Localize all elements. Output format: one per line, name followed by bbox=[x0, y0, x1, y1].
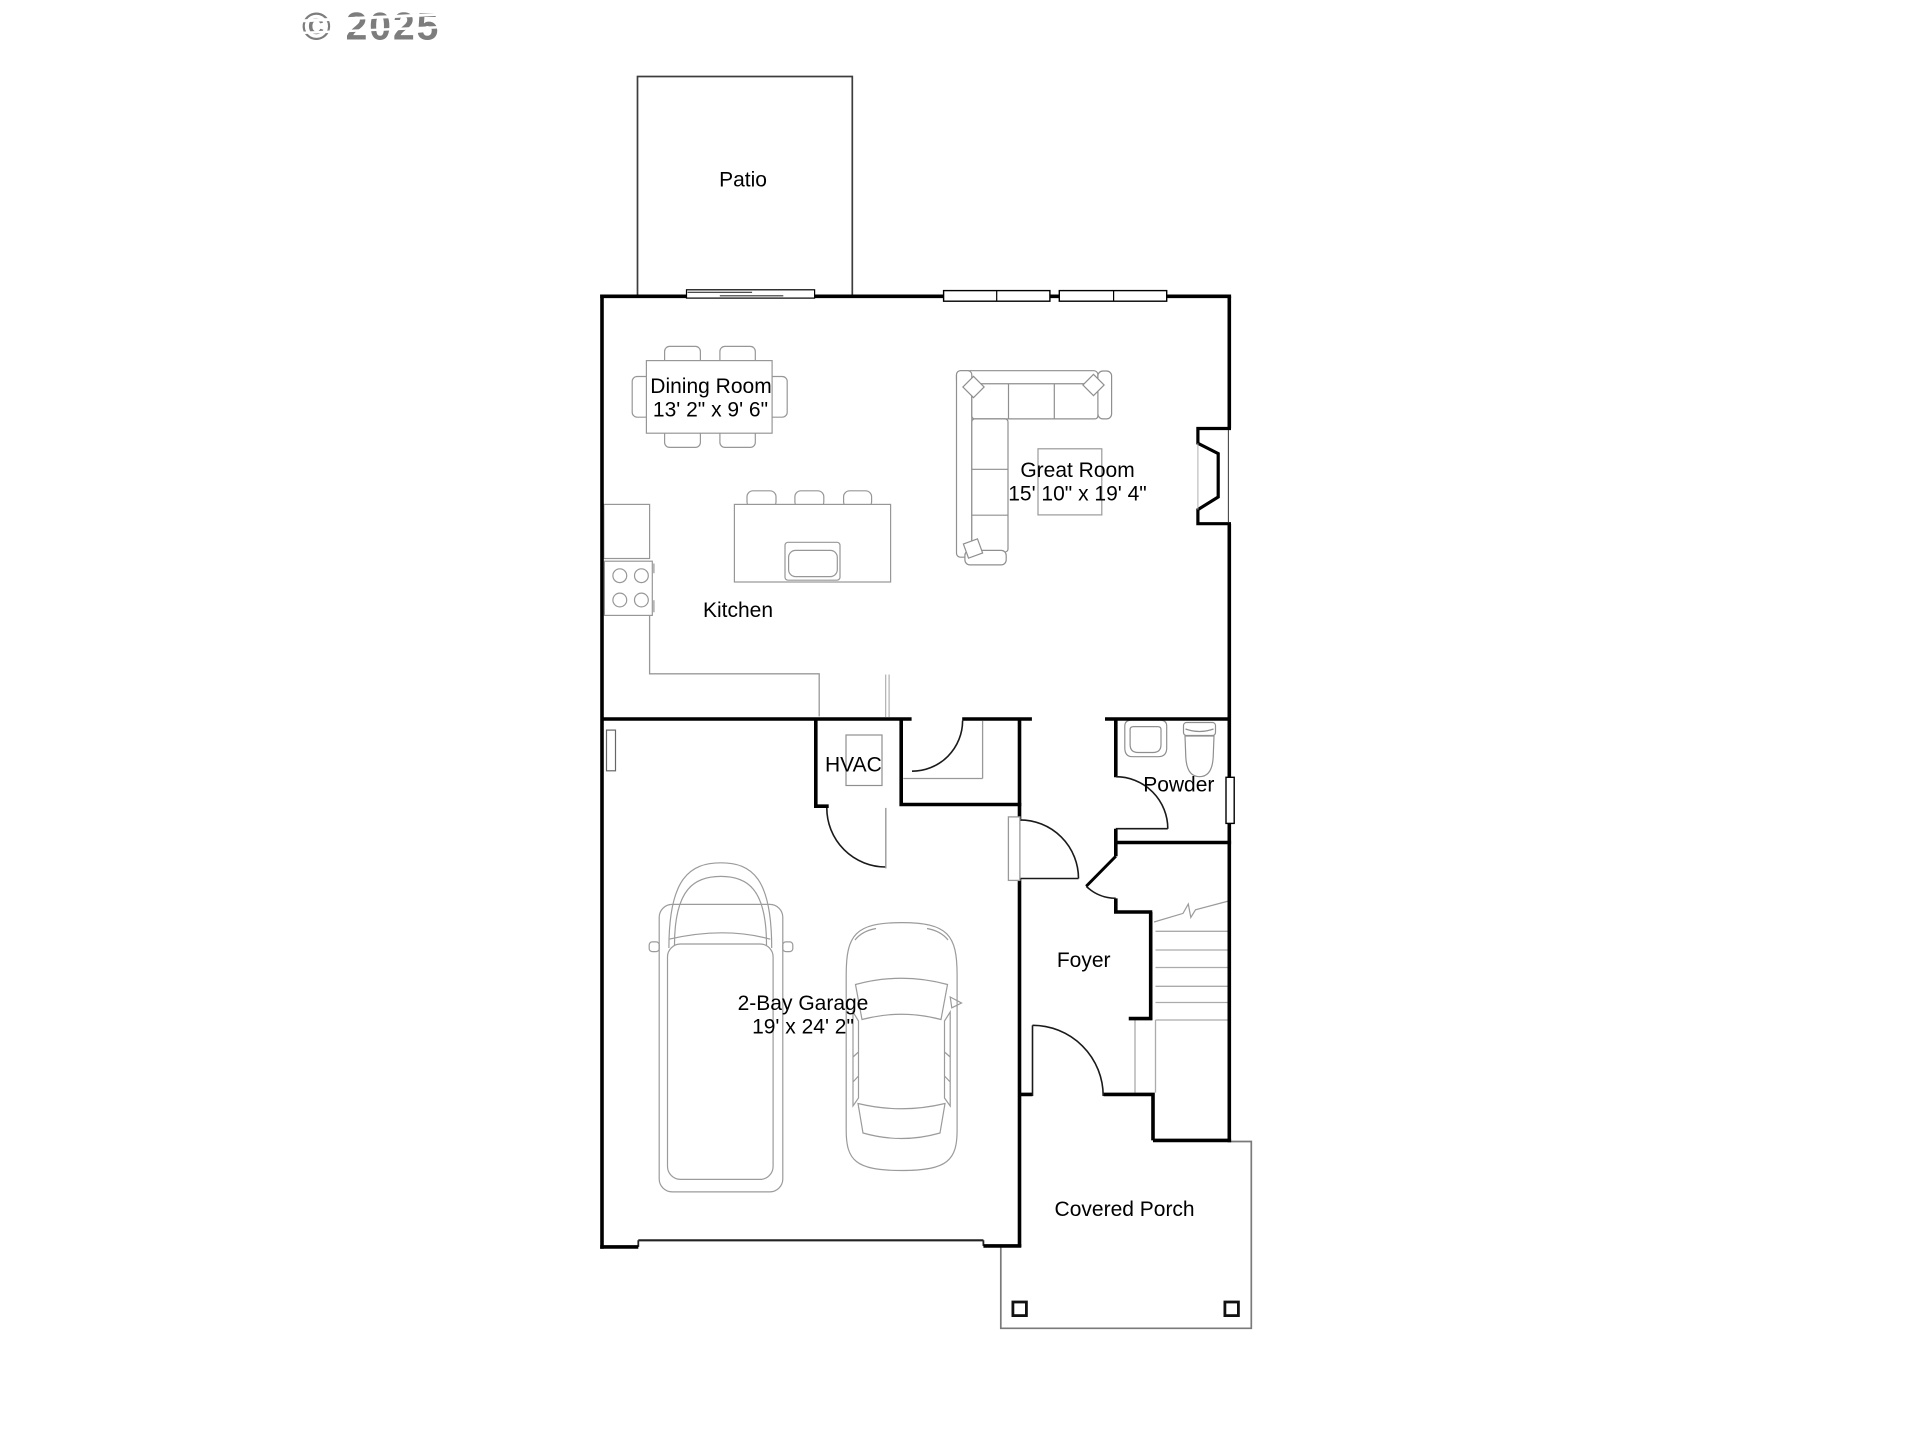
svg-text:Great Room: Great Room bbox=[1020, 459, 1134, 482]
svg-text:Powder: Powder bbox=[1143, 774, 1214, 797]
svg-text:15' 10" x 19' 4": 15' 10" x 19' 4" bbox=[1008, 483, 1147, 506]
svg-text:Foyer: Foyer bbox=[1057, 949, 1111, 972]
svg-text:Patio: Patio bbox=[719, 169, 767, 192]
svg-text:19' x 24' 2": 19' x 24' 2" bbox=[752, 1016, 854, 1039]
svg-text:Covered Porch: Covered Porch bbox=[1055, 1198, 1195, 1221]
svg-text:13' 2" x 9' 6": 13' 2" x 9' 6" bbox=[653, 399, 768, 422]
svg-text:Dining Room: Dining Room bbox=[650, 375, 771, 398]
svg-text:2-Bay Garage: 2-Bay Garage bbox=[738, 992, 869, 1015]
svg-text:Kitchen: Kitchen bbox=[703, 599, 773, 622]
svg-text:HVAC: HVAC bbox=[825, 754, 882, 777]
